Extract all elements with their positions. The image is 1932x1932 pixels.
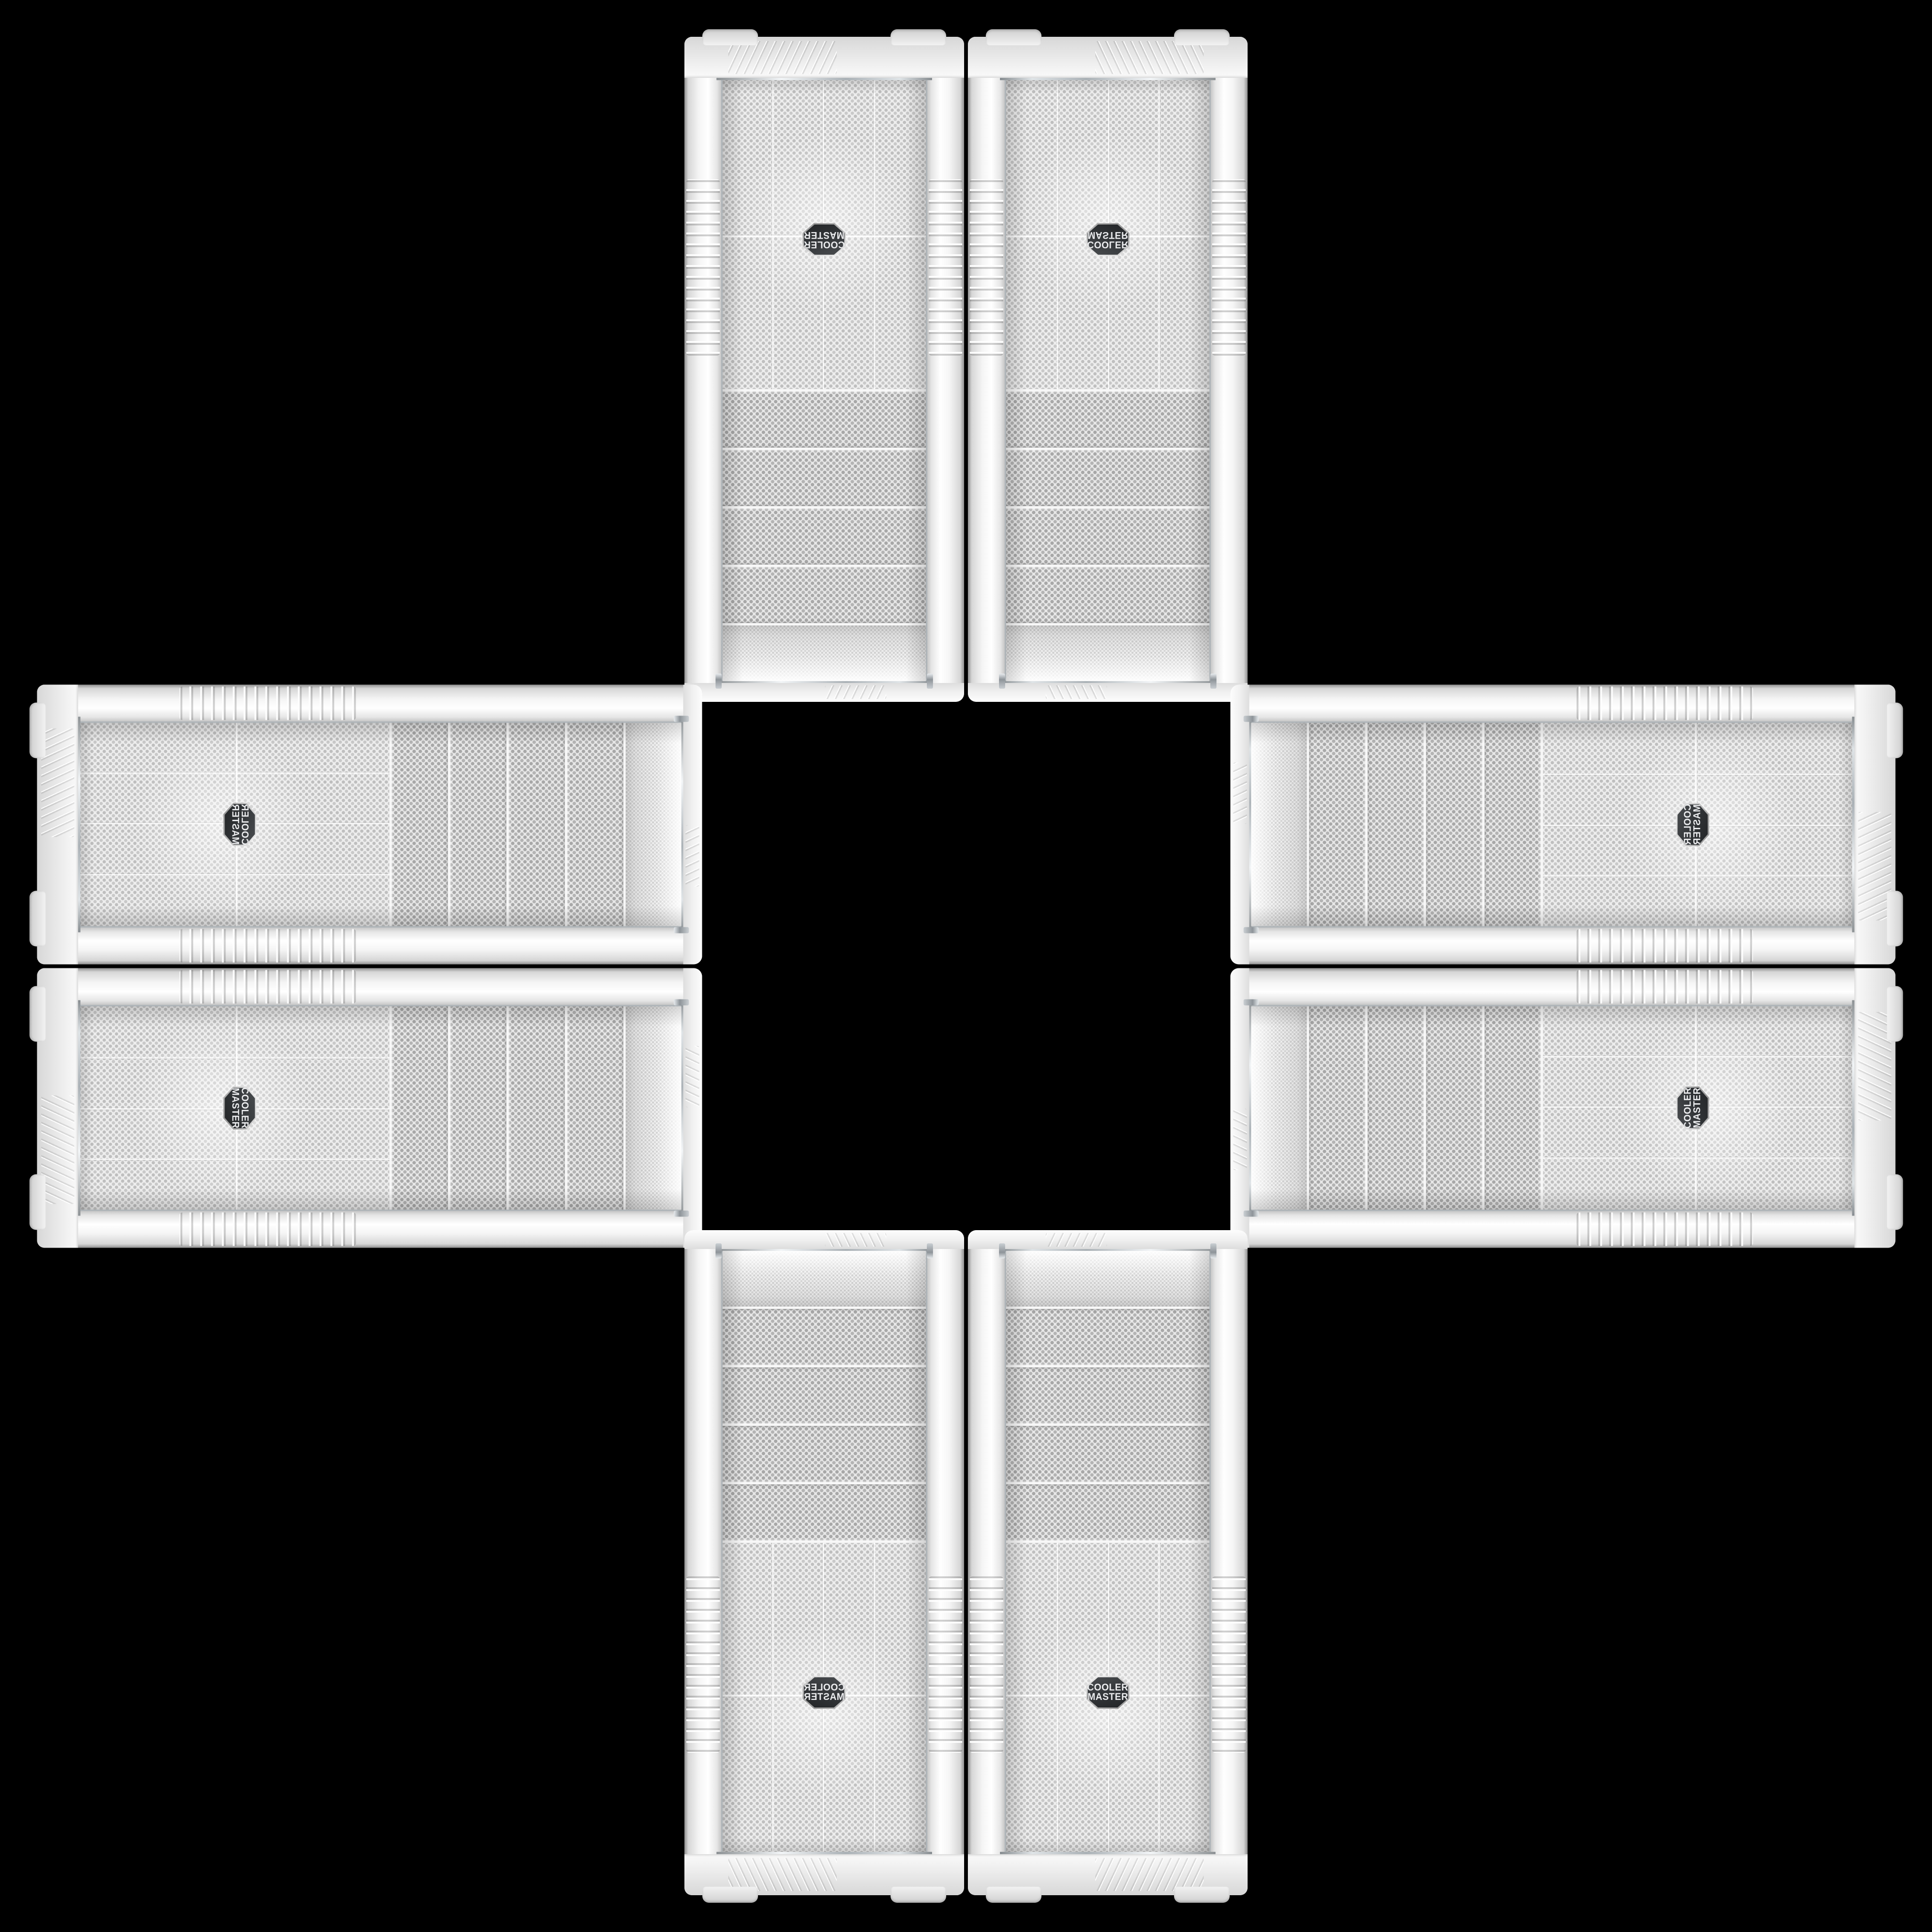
side-rail-ribs <box>179 1212 356 1246</box>
badge-text-line1: COOLER <box>804 1683 845 1692</box>
bottom-cap-grooves <box>1095 41 1204 74</box>
badge-text-line1: COOLER <box>1087 1683 1128 1692</box>
latch-clip-icon <box>999 674 1005 689</box>
cooler-master-badge-icon: COOLER MASTER <box>1086 223 1130 256</box>
side-rail-ribs <box>1212 1576 1246 1753</box>
side-rail-left <box>1241 684 1861 723</box>
mesh-side-shading <box>1251 723 1852 926</box>
cooler-master-badge-icon: COOLER MASTER <box>803 223 846 256</box>
bottom-cap-grooves <box>41 1095 74 1204</box>
mesh-side-shading <box>723 80 926 681</box>
top-rim <box>683 684 702 964</box>
front-mesh-panel: COOLER MASTER <box>723 1251 926 1852</box>
chrome-trim-bottom <box>78 716 80 932</box>
cooler-master-badge-icon: COOLER MASTER <box>1086 1676 1130 1709</box>
bottom-cap-grooves <box>1095 1858 1204 1891</box>
cooler-master-badge-icon: COOLER MASTER <box>223 803 256 846</box>
side-rail-left <box>71 968 691 1006</box>
badge-text-line1: COOLER <box>1683 1087 1692 1128</box>
case-foot-left <box>986 29 1041 45</box>
top-rim-grooves <box>825 1233 886 1247</box>
side-rail-right <box>1209 71 1248 691</box>
side-rail-right <box>1241 968 1861 1006</box>
badge-face: COOLER MASTER <box>225 804 255 845</box>
case-foot-left <box>1887 1174 1903 1230</box>
badge-face: COOLER MASTER <box>1677 1088 1707 1128</box>
pc-case-top-right: COOLER MASTER <box>968 37 1248 702</box>
side-rail-left <box>926 1241 964 1861</box>
badge-text-line2: MASTER <box>1692 804 1702 844</box>
front-mesh-panel: COOLER MASTER <box>1006 80 1209 681</box>
top-rim-grooves <box>1046 1233 1107 1247</box>
latch-clip-icon <box>927 1243 933 1258</box>
front-mesh-panel: COOLER MASTER <box>80 723 681 926</box>
pc-case-right-top: COOLER MASTER <box>1230 684 1895 964</box>
pc-case-left-bottom: COOLER MASTER <box>37 968 702 1248</box>
chrome-trim-bottom <box>1000 78 1216 80</box>
mesh-side-shading <box>1006 1251 1209 1852</box>
latch-clip-icon <box>1243 1210 1258 1216</box>
top-rim-grooves <box>685 1046 699 1107</box>
case-foot-left <box>1887 702 1903 758</box>
side-rail-ribs <box>1576 970 1753 1003</box>
latch-clip-icon <box>1210 674 1216 689</box>
side-rail-ribs <box>1576 929 1753 962</box>
top-rim <box>683 968 702 1248</box>
side-rail-ribs <box>179 686 356 720</box>
badge-face: COOLER MASTER <box>1088 1677 1128 1707</box>
top-rim <box>684 683 964 702</box>
side-rail-ribs <box>1576 686 1753 720</box>
badge-text-line1: COOLER <box>240 804 249 845</box>
side-rail-right <box>684 71 723 691</box>
side-rail-right <box>71 684 691 723</box>
side-rail-right <box>684 1241 723 1861</box>
side-rail-ribs <box>970 1576 1003 1753</box>
latch-clip-icon <box>674 1210 689 1216</box>
cooler-master-badge-icon: COOLER MASTER <box>1676 803 1709 846</box>
chrome-trim-bottom <box>78 1000 80 1216</box>
side-rail-chrome-trim <box>1209 1247 1211 1856</box>
side-rail-chrome-trim <box>1209 76 1211 685</box>
case-foot-right <box>702 29 758 45</box>
badge-text-line2: MASTER <box>230 804 240 844</box>
latch-clip-icon <box>1243 716 1258 722</box>
badge-text-line2: MASTER <box>1087 230 1128 240</box>
side-rail-right <box>71 1209 691 1248</box>
side-rail-right <box>1209 1241 1248 1861</box>
pc-case-bottom-left: COOLER MASTER <box>684 1230 964 1895</box>
mesh-side-shading <box>1251 1006 1852 1209</box>
latch-clip-icon <box>674 716 689 722</box>
side-rail-ribs <box>1576 1212 1753 1246</box>
bottom-cap-grooves <box>728 41 837 74</box>
front-mesh-panel: COOLER MASTER <box>1006 1251 1209 1852</box>
top-rim-grooves <box>825 685 886 699</box>
pc-case-top-left: COOLER MASTER <box>684 37 964 702</box>
badge-face: COOLER MASTER <box>1677 804 1707 845</box>
chrome-trim-bottom <box>1852 716 1854 932</box>
badge-face: COOLER MASTER <box>804 1677 845 1707</box>
collage-stage: COOLER MASTER <box>0 0 1932 1932</box>
side-rail-ribs <box>179 970 356 1003</box>
case-foot-left <box>29 986 45 1041</box>
side-rail-right <box>1241 926 1861 964</box>
mesh-side-shading <box>80 1006 681 1209</box>
badge-text-line1: COOLER <box>1087 240 1128 249</box>
pc-case-left-top: COOLER MASTER <box>37 684 702 964</box>
top-rim-grooves <box>1233 1108 1247 1170</box>
badge-text-line2: MASTER <box>1692 1087 1702 1128</box>
case-foot-right <box>29 702 45 758</box>
side-rail-ribs <box>686 179 720 356</box>
side-rail-chrome-trim <box>926 76 927 685</box>
front-mesh-panel: COOLER MASTER <box>1251 723 1852 926</box>
pc-case-bottom-right: COOLER MASTER <box>968 1230 1248 1895</box>
chrome-trim-bottom <box>1852 1000 1854 1216</box>
case-foot-right <box>1887 986 1903 1041</box>
pc-case-right-bottom: COOLER MASTER <box>1230 968 1895 1248</box>
cooler-master-badge-icon: COOLER MASTER <box>223 1086 256 1130</box>
badge-text-line2: MASTER <box>804 1692 844 1702</box>
badge-text-line2: MASTER <box>804 230 844 240</box>
cooler-master-badge-icon: COOLER MASTER <box>1676 1086 1709 1130</box>
top-rim-grooves <box>1233 762 1247 824</box>
bottom-cap-grooves <box>1858 1012 1891 1120</box>
side-rail-ribs <box>686 1576 720 1753</box>
side-rail-left <box>968 71 1006 691</box>
case-foot-left <box>891 1887 946 1903</box>
latch-clip-icon <box>1210 1243 1216 1258</box>
badge-text-line1: COOLER <box>1683 804 1692 845</box>
top-rim-grooves <box>685 825 699 886</box>
latch-clip-icon <box>716 674 722 689</box>
badge-face: COOLER MASTER <box>225 1088 255 1128</box>
side-rail-ribs <box>929 179 962 356</box>
badge-face: COOLER MASTER <box>1088 225 1128 255</box>
top-rim <box>968 683 1248 702</box>
case-foot-right <box>1887 891 1903 946</box>
front-mesh-panel: COOLER MASTER <box>723 80 926 681</box>
case-foot-right <box>29 1174 45 1230</box>
side-rail-left <box>926 71 964 691</box>
front-mesh-panel: COOLER MASTER <box>80 1006 681 1209</box>
case-foot-right <box>1174 29 1230 45</box>
case-foot-right <box>1174 1887 1230 1903</box>
latch-clip-icon <box>927 674 933 689</box>
side-rail-left <box>71 926 691 964</box>
cooler-master-badge-icon: COOLER MASTER <box>803 1676 846 1709</box>
mesh-side-shading <box>1006 80 1209 681</box>
top-rim <box>684 1230 964 1249</box>
chrome-trim-bottom <box>716 78 932 80</box>
case-foot-left <box>986 1887 1041 1903</box>
mesh-side-shading <box>723 1251 926 1852</box>
side-rail-left <box>1241 1209 1861 1248</box>
badge-text-line1: COOLER <box>240 1087 249 1128</box>
top-rim <box>968 1230 1248 1249</box>
front-mesh-panel: COOLER MASTER <box>1251 1006 1852 1209</box>
case-foot-left <box>891 29 946 45</box>
case-foot-right <box>702 1887 758 1903</box>
top-rim-grooves <box>1046 685 1107 699</box>
latch-clip-icon <box>1243 927 1258 933</box>
side-rail-ribs <box>970 179 1003 356</box>
mesh-side-shading <box>80 723 681 926</box>
bottom-cap-grooves <box>728 1858 837 1891</box>
latch-clip-icon <box>999 1243 1005 1258</box>
badge-face: COOLER MASTER <box>804 225 845 255</box>
side-rail-ribs <box>179 929 356 962</box>
badge-text-line1: COOLER <box>804 240 845 249</box>
latch-clip-icon <box>674 927 689 933</box>
badge-text-line2: MASTER <box>230 1087 240 1128</box>
case-foot-left <box>29 891 45 946</box>
side-rail-left <box>968 1241 1006 1861</box>
top-rim <box>1230 684 1249 964</box>
latch-clip-icon <box>1243 999 1258 1005</box>
bottom-cap-grooves <box>41 728 74 837</box>
side-rail-ribs <box>929 1576 962 1753</box>
side-rail-chrome-trim <box>926 1247 927 1856</box>
top-rim <box>1230 968 1249 1248</box>
badge-text-line2: MASTER <box>1087 1692 1128 1702</box>
latch-clip-icon <box>716 1243 722 1258</box>
bottom-cap-grooves <box>1858 812 1891 920</box>
side-rail-ribs <box>1212 179 1246 356</box>
latch-clip-icon <box>674 999 689 1005</box>
